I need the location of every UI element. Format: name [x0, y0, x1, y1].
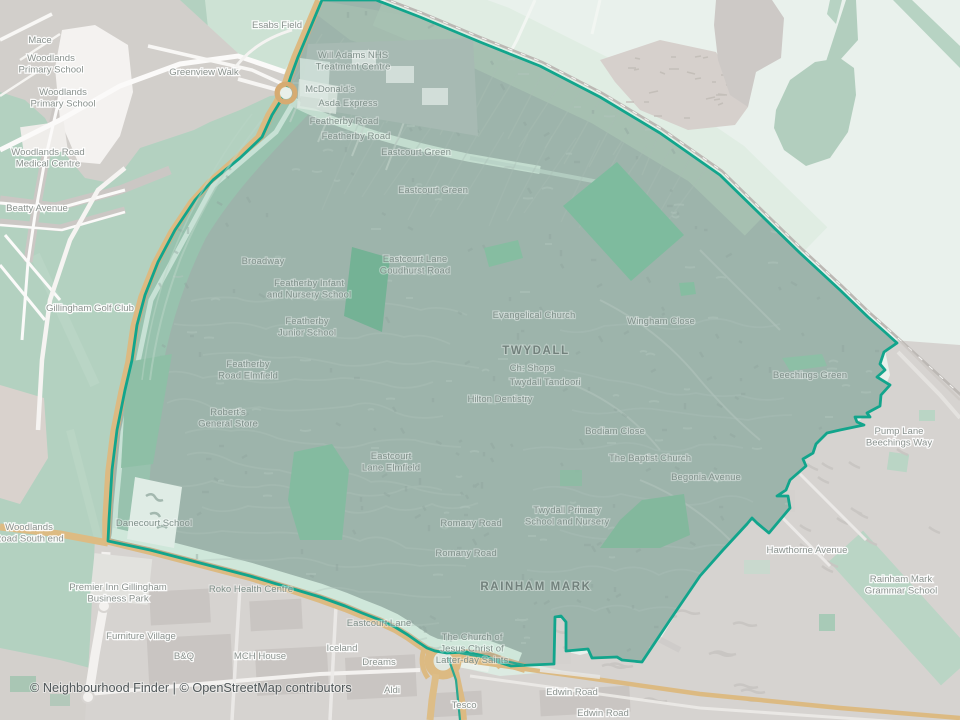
svg-text:Edwin Road: Edwin Road: [546, 687, 598, 698]
svg-text:WoodlandsPrimary School: WoodlandsPrimary School: [30, 87, 95, 110]
svg-text:Eastcourt LaneGoudhurst Road: Eastcourt LaneGoudhurst Road: [380, 254, 450, 277]
svg-text:Twydall Tandoori: Twydall Tandoori: [509, 377, 580, 388]
svg-text:McDonald's: McDonald's: [305, 84, 355, 95]
svg-text:© Neighbourhood Finder | © Ope: © Neighbourhood Finder | © OpenStreetMap…: [30, 681, 352, 695]
svg-text:Featherby Infantand Nursery Sc: Featherby Infantand Nursery School: [267, 278, 351, 301]
svg-text:Wingham Close: Wingham Close: [627, 316, 695, 327]
svg-text:Pump LaneBeechings Way: Pump LaneBeechings Way: [866, 426, 933, 449]
svg-text:FeatherbyJunior School: FeatherbyJunior School: [278, 316, 336, 339]
svg-text:Woodlands RoadMedical Centre: Woodlands RoadMedical Centre: [11, 147, 84, 170]
svg-text:Mace: Mace: [28, 35, 51, 46]
svg-text:Hawthorne Avenue: Hawthorne Avenue: [767, 545, 848, 556]
svg-text:Eastcourt Green: Eastcourt Green: [381, 147, 451, 158]
svg-text:Ch: Shops: Ch: Shops: [510, 363, 555, 374]
svg-text:MCH House: MCH House: [234, 651, 286, 662]
svg-text:Begonia Avenue: Begonia Avenue: [671, 472, 741, 483]
svg-text:FeatherbyRoad Elmfield: FeatherbyRoad Elmfield: [218, 359, 278, 382]
svg-text:Eastcourt Green: Eastcourt Green: [398, 185, 468, 196]
svg-text:Asda Express: Asda Express: [318, 98, 377, 109]
svg-text:WoodlandsPrimary School: WoodlandsPrimary School: [18, 53, 83, 76]
svg-text:RAINHAM MARK: RAINHAM MARK: [480, 581, 591, 593]
svg-text:Evangelical Church: Evangelical Church: [493, 310, 576, 321]
svg-text:Roko Health Centre: Roko Health Centre: [209, 584, 293, 595]
svg-text:Broadway: Broadway: [242, 256, 285, 267]
svg-text:Romany Road: Romany Road: [435, 548, 496, 559]
svg-text:Featherby Road: Featherby Road: [322, 131, 391, 142]
svg-text:Tesco: Tesco: [451, 700, 476, 711]
svg-text:Gillingham Golf Club: Gillingham Golf Club: [46, 303, 134, 314]
svg-text:Greenview Walk: Greenview Walk: [169, 67, 239, 78]
svg-text:Danecourt School: Danecourt School: [116, 518, 192, 529]
svg-text:B&Q: B&Q: [174, 651, 194, 662]
svg-text:Rainham MarkGrammar School: Rainham MarkGrammar School: [865, 574, 938, 597]
svg-text:Beatty Avenue: Beatty Avenue: [6, 203, 68, 214]
svg-text:Hilton Dentistry: Hilton Dentistry: [467, 394, 532, 405]
svg-text:Edwin Road: Edwin Road: [577, 708, 629, 719]
svg-text:Romany Road: Romany Road: [440, 518, 501, 529]
svg-text:The Church ofJesus Christ ofLa: The Church ofJesus Christ ofLatter-day S…: [436, 632, 509, 666]
svg-text:Twydall PrimarySchool and Nurs: Twydall PrimarySchool and Nursery: [525, 505, 609, 528]
svg-text:Iceland: Iceland: [327, 643, 358, 654]
svg-text:Beechings Green: Beechings Green: [773, 370, 847, 381]
svg-text:Aldi: Aldi: [384, 685, 400, 696]
svg-text:Eastcourt Lane: Eastcourt Lane: [347, 618, 412, 629]
svg-text:Dreams: Dreams: [362, 657, 396, 668]
svg-text:Furniture Village: Furniture Village: [106, 631, 176, 642]
svg-text:The Baptist Church: The Baptist Church: [609, 453, 691, 464]
svg-text:Featherby Road: Featherby Road: [310, 116, 379, 127]
svg-text:Will Adams NHSTreatment Centre: Will Adams NHSTreatment Centre: [316, 50, 391, 73]
svg-text:Bodiam Close: Bodiam Close: [585, 426, 645, 437]
svg-text:TWYDALL: TWYDALL: [502, 345, 569, 357]
svg-text:Esabs Field: Esabs Field: [252, 20, 302, 31]
